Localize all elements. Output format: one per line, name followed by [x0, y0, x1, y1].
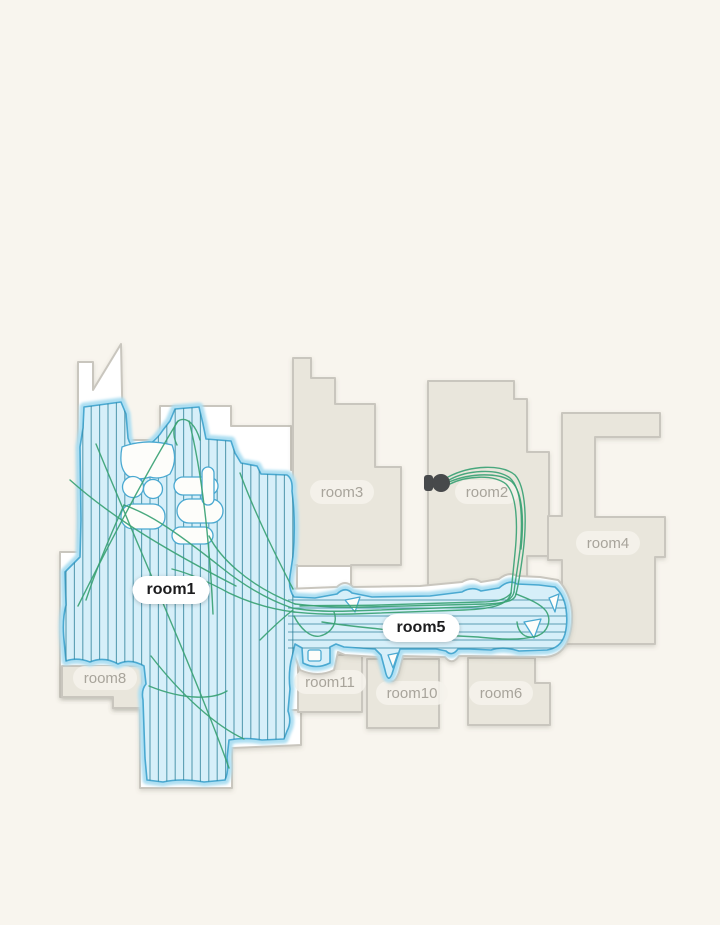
room-label-room2[interactable]: room2: [455, 480, 519, 504]
room-label-room6[interactable]: room6: [469, 681, 533, 705]
room-label-room1-selected[interactable]: room1: [133, 576, 210, 604]
room-label-room4[interactable]: room4: [576, 531, 640, 555]
room-label-room8[interactable]: room8: [73, 666, 137, 690]
robot-marker-group: [424, 474, 450, 492]
room-label-room5-selected[interactable]: room5: [383, 614, 460, 642]
room-label-room3[interactable]: room3: [310, 480, 374, 504]
vacuum-map-screen: room3 room2 room4 room8 room11 room10 ro…: [0, 0, 720, 925]
charging-dock-icon: [424, 475, 433, 491]
robot-position-icon: [432, 474, 450, 492]
room-shape-room3[interactable]: [291, 358, 401, 594]
svg-text:room10: room10: [387, 685, 438, 702]
svg-text:room6: room6: [480, 685, 523, 702]
svg-text:room8: room8: [84, 670, 127, 687]
svg-text:room3: room3: [321, 484, 364, 501]
svg-text:room2: room2: [466, 484, 509, 501]
room-label-room11[interactable]: room11: [294, 670, 366, 694]
svg-text:room11: room11: [305, 674, 355, 691]
floor-map[interactable]: room3 room2 room4 room8 room11 room10 ro…: [0, 0, 720, 925]
svg-text:room4: room4: [587, 535, 630, 552]
room-label-room10[interactable]: room10: [376, 681, 448, 705]
